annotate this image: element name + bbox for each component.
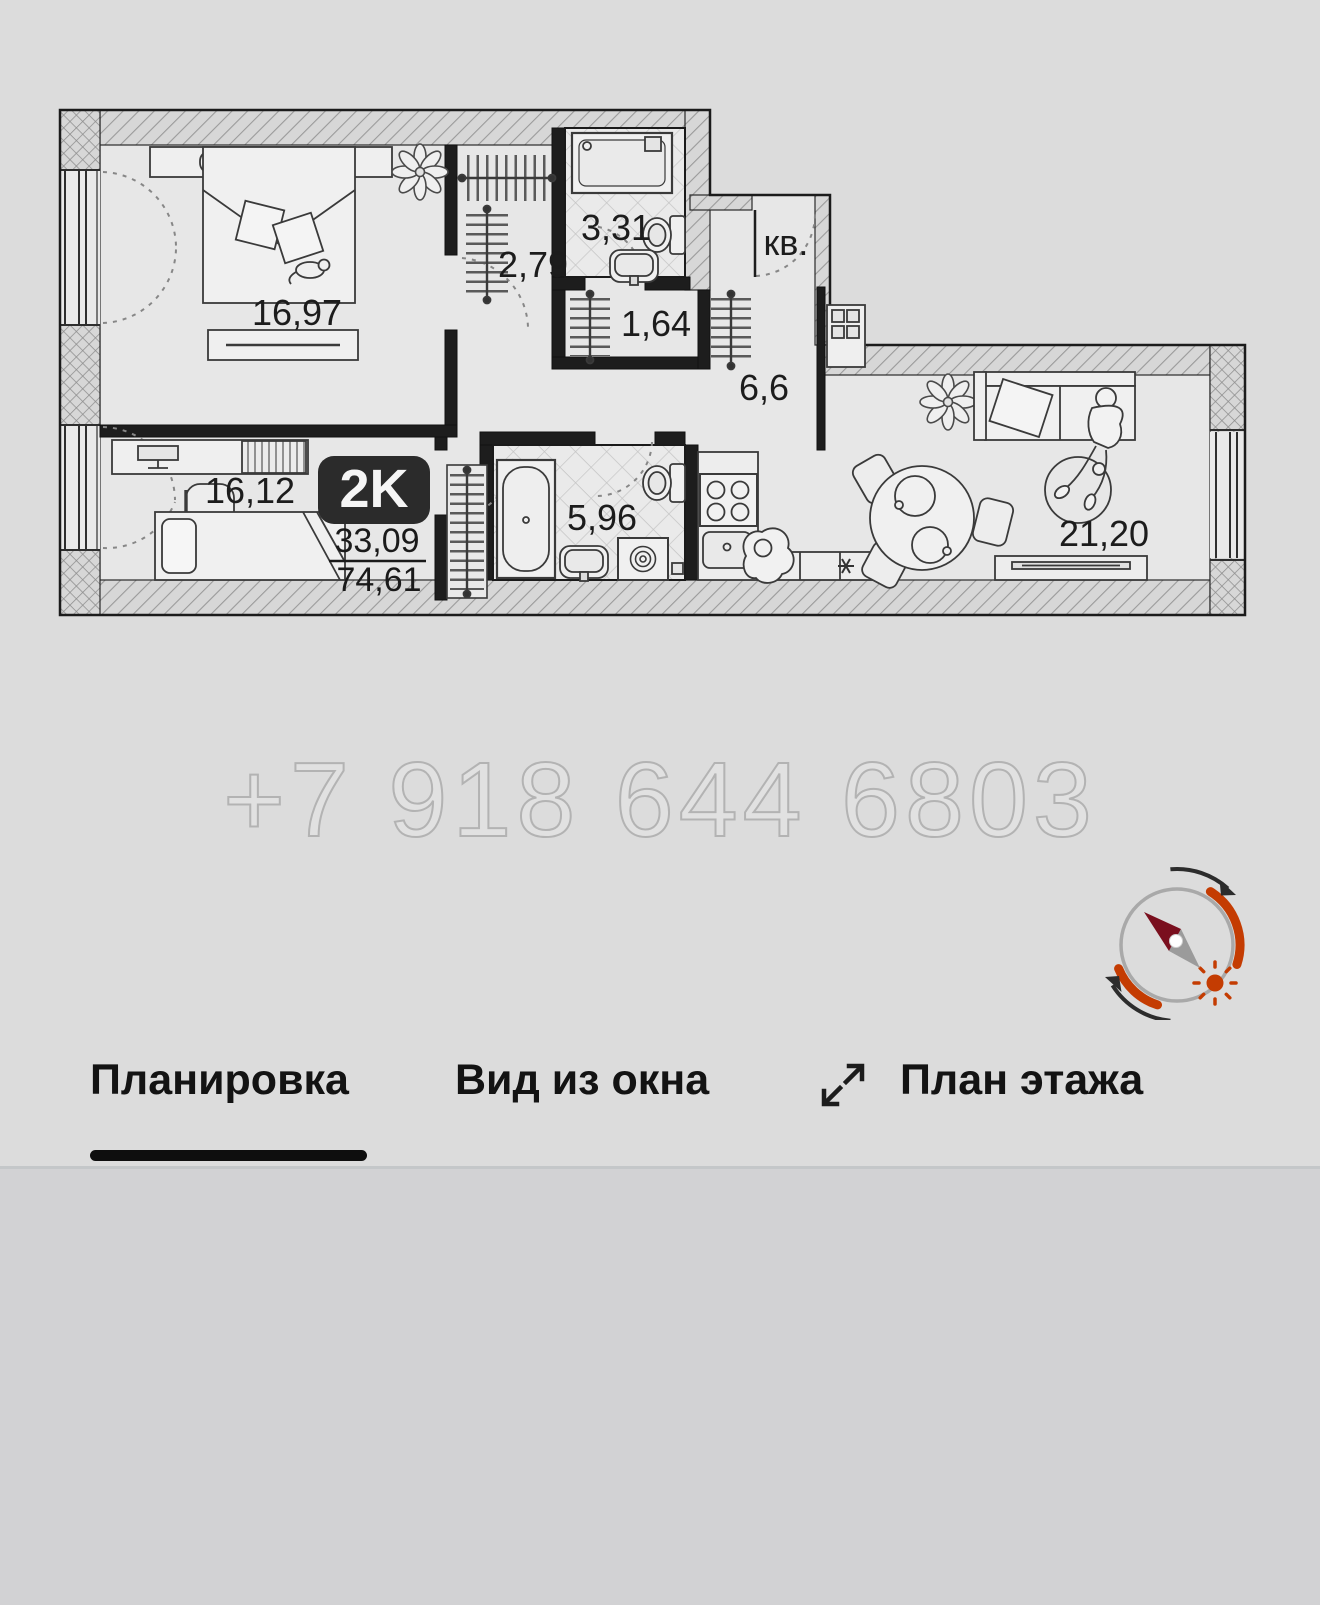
shoe-cabinet [827,305,865,367]
watermark-phone: +7 918 644 6803 [0,740,1320,861]
active-tab-underline [90,1150,367,1161]
expand-icon[interactable] [816,1058,870,1112]
sun-icon [1194,962,1236,1004]
compass-needle [1144,912,1200,968]
room-area-bedroom2: 16,12 [205,470,295,511]
floor-plan-svg: 16,97 16,12 2,79 3,31 1,64 6,6 5,96 21,2… [55,105,1250,620]
living-area-value: 33,09 [334,522,419,560]
tab-planirovka[interactable]: Планировка [90,1056,349,1105]
room-area-kitchen-living: 21,20 [1059,513,1149,554]
lower-section: Добавлено 16.01.2026, 11:00 Наличие обно… [0,1169,1320,1605]
east-window [1210,430,1245,560]
listing-screen: 16,97 16,12 2,79 3,31 1,64 6,6 5,96 21,2… [0,0,1320,1605]
media-tabs: Планировка Вид из окна План этажа [0,1056,1320,1116]
tab-vid-iz-okna[interactable]: Вид из окна [455,1056,709,1105]
room-area-hallway: 6,6 [739,367,789,408]
room-area-wardrobe: 2,79 [498,244,568,285]
room-area-closet: 1,64 [621,303,691,344]
compass-icon [1088,850,1248,1020]
plant-icon [392,144,448,200]
room-area-bathroom: 5,96 [567,497,637,538]
badge-type-label: 2K [339,459,408,519]
room-area-bedroom1: 16,97 [252,292,342,333]
floor-plan-image: 16,97 16,12 2,79 3,31 1,64 6,6 5,96 21,2… [55,105,1250,620]
washing-machine-icon [618,538,668,580]
total-area-value: 74,61 [336,561,421,599]
niche-rail [447,465,487,598]
tab-plan-etazha[interactable]: План этажа [900,1056,1143,1105]
entry-label: кв. [764,222,809,263]
room-area-bathroom-small: 3,31 [581,207,651,248]
plant2-icon [920,374,976,430]
tv-bench [995,556,1147,580]
